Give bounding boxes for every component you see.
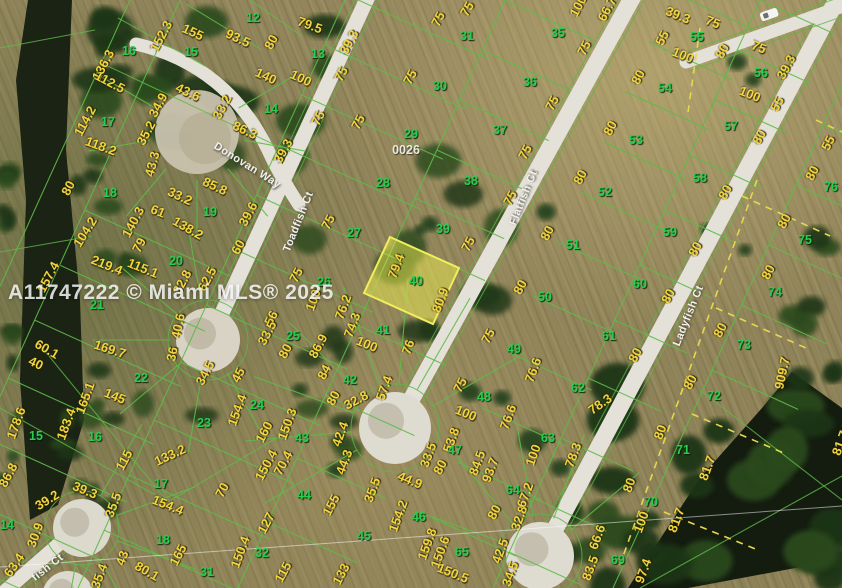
parcel-line <box>232 248 373 312</box>
plat-map: 136.3112.5152.315593.580140114.234.943.6… <box>0 0 842 588</box>
dashed-parcel-line <box>742 196 830 236</box>
tree <box>493 390 511 405</box>
vegetation <box>766 427 808 473</box>
parcel-line <box>432 518 516 556</box>
vegetation <box>443 181 483 208</box>
parcel-line <box>344 287 380 387</box>
vegetation <box>303 15 346 39</box>
parcel-line <box>129 475 270 539</box>
vegetation <box>792 312 818 337</box>
parcel-line <box>508 352 592 390</box>
parcel-line <box>823 125 842 164</box>
vegetation <box>185 407 219 423</box>
tree <box>738 244 752 256</box>
parcel-line <box>227 373 266 440</box>
vegetation <box>335 438 363 461</box>
parcel-line <box>117 541 195 569</box>
vegetation <box>671 435 707 474</box>
vegetation <box>94 199 123 215</box>
cul-de-sac-texture <box>515 532 549 566</box>
vegetation <box>93 249 117 268</box>
vegetation <box>87 362 111 378</box>
parcel-line <box>120 266 179 315</box>
vegetation <box>330 414 359 430</box>
parcel-line <box>325 45 466 109</box>
dashed-parcel-line <box>816 120 842 132</box>
parcel-line <box>626 92 710 130</box>
parcel-line <box>533 296 617 334</box>
parcel-line <box>89 140 150 151</box>
vegetation <box>119 254 147 277</box>
tree <box>518 429 546 453</box>
vegetation <box>590 567 626 588</box>
parcel-line <box>603 142 687 180</box>
vegetation <box>416 144 462 178</box>
tree <box>292 383 308 397</box>
parcel-line <box>505 0 594 41</box>
tree <box>536 204 556 221</box>
parcel-line <box>796 185 842 224</box>
parcel-line <box>672 0 756 30</box>
parcel-line <box>482 50 571 91</box>
cul-de-sac-texture <box>60 508 89 537</box>
vegetation <box>2 325 22 345</box>
tree <box>745 73 761 87</box>
vegetation <box>101 412 125 426</box>
parcel-line <box>256 195 397 259</box>
parcel-line <box>228 169 268 216</box>
tree <box>459 383 481 402</box>
vegetation <box>787 367 814 391</box>
vegetation <box>680 473 714 499</box>
vegetation <box>60 409 75 429</box>
vegetation <box>69 175 87 196</box>
parcel-line <box>250 0 302 36</box>
aerial-canvas <box>0 0 842 588</box>
vegetation <box>185 6 228 38</box>
vegetation <box>0 473 8 485</box>
cul-de-sac-texture <box>368 403 404 439</box>
vegetation <box>783 530 837 572</box>
parcel-line <box>460 100 549 141</box>
parcel-line <box>558 242 642 280</box>
vegetation <box>333 340 353 363</box>
parcel-line <box>117 487 195 515</box>
parcel-line <box>581 192 665 230</box>
parcel-line <box>104 530 245 588</box>
vegetation <box>292 225 327 254</box>
dashed-parcel-line <box>688 28 700 112</box>
parcel-line <box>101 560 143 588</box>
tree <box>550 460 570 477</box>
tree <box>414 225 426 235</box>
parcel-line <box>433 353 525 406</box>
parcel-line <box>168 430 290 502</box>
parcel-line <box>154 420 295 484</box>
parcel-line <box>418 512 503 543</box>
parcel-line <box>456 456 514 525</box>
dirt-circle-core <box>179 112 231 164</box>
parcel-line <box>188 227 201 303</box>
parcel-line <box>126 169 166 216</box>
vegetation <box>86 152 110 166</box>
